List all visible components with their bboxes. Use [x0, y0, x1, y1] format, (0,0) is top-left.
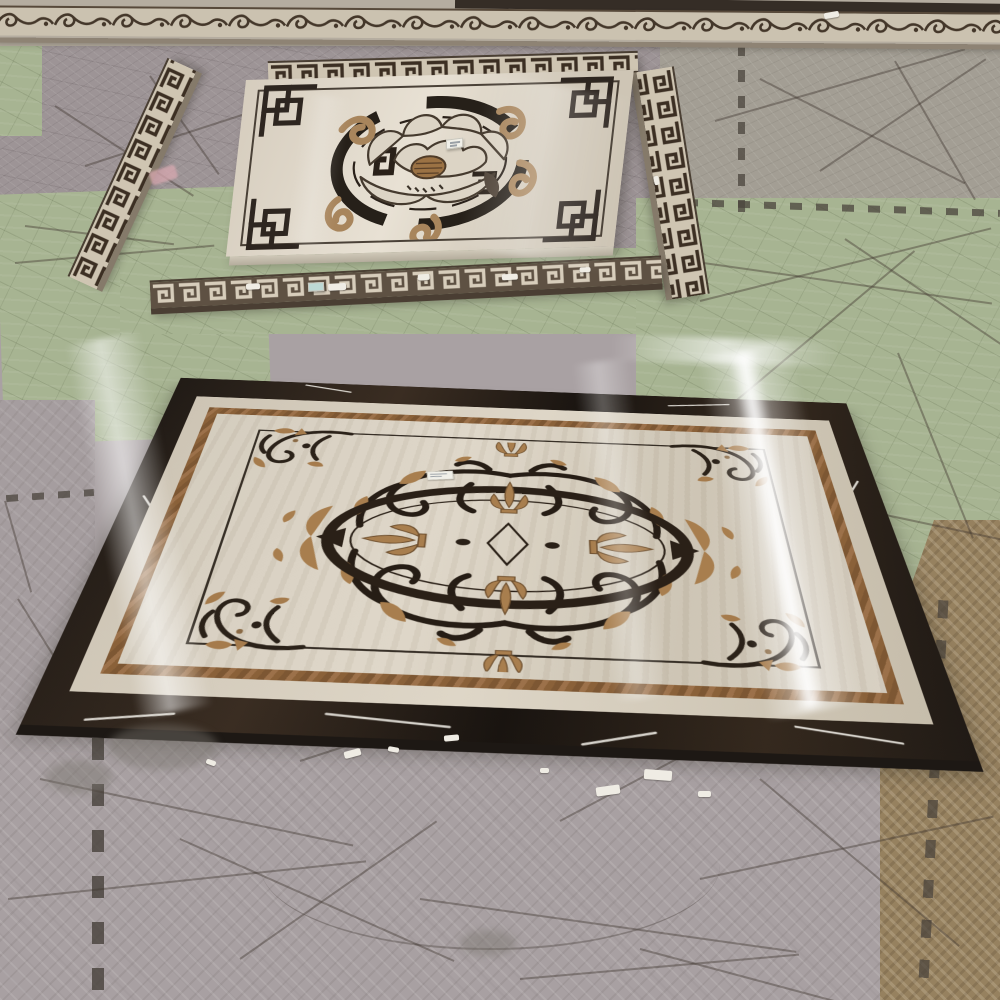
scribe-line — [640, 948, 930, 1000]
scribe-line — [420, 898, 797, 953]
dust-patch — [460, 930, 516, 956]
square-peony-medallion — [226, 70, 634, 257]
central-oval-motif — [175, 433, 831, 685]
scribe-line — [4, 501, 32, 593]
scribe-line — [844, 238, 1000, 385]
scribe-arc — [260, 780, 720, 950]
marble-vein — [794, 725, 904, 745]
marble-vein — [305, 384, 352, 392]
debris-chip — [205, 758, 216, 766]
rectangular-medallion — [20, 378, 979, 762]
puzzle-seam — [660, 198, 1000, 217]
marble-vein — [581, 731, 658, 745]
dust-patch — [46, 760, 112, 794]
mat-green-corner — [0, 44, 42, 136]
puzzle-seam — [738, 44, 745, 212]
marble-vein — [667, 404, 729, 406]
beige-field — [118, 414, 888, 693]
marble-vein — [83, 712, 175, 720]
scribe-line — [715, 48, 965, 122]
puzzle-seam — [6, 489, 94, 502]
scribe-line — [40, 778, 353, 846]
scribe-line — [8, 860, 366, 900]
scribe-line — [180, 838, 455, 962]
blue-sticker — [308, 282, 324, 292]
scroll-pattern — [0, 7, 1000, 42]
debris-chip — [343, 748, 361, 759]
scribe-line — [897, 353, 974, 539]
scribe-line — [700, 227, 992, 302]
inventory-sticker — [427, 471, 454, 480]
debris-chip — [698, 791, 711, 797]
scroll-border-strip — [0, 5, 1000, 44]
greek-key-strip-left-diagonal — [68, 58, 199, 290]
dark-marble-border — [20, 378, 979, 762]
marble-vein — [324, 713, 451, 729]
glare-top-border — [610, 334, 841, 368]
greek-key-strip-below-square — [150, 256, 663, 311]
debris-chip — [540, 768, 549, 773]
scribe-line — [759, 778, 959, 947]
scribe-line — [520, 954, 799, 980]
debris-chip — [595, 784, 620, 796]
beige-band — [69, 396, 933, 724]
scribe-line — [894, 61, 976, 201]
puzzle-seam — [92, 738, 104, 1000]
scribe-line — [700, 816, 994, 880]
mat-gray-top-right — [660, 38, 1000, 216]
gold-band — [100, 407, 904, 704]
workshop-photo — [0, 0, 1000, 1000]
scribe-line — [675, 258, 992, 305]
scribe-line — [760, 78, 966, 184]
peony-medallion-motif — [289, 84, 570, 243]
scribe-line — [819, 58, 986, 171]
scribe-line — [239, 821, 437, 960]
debris-chip — [644, 769, 673, 781]
